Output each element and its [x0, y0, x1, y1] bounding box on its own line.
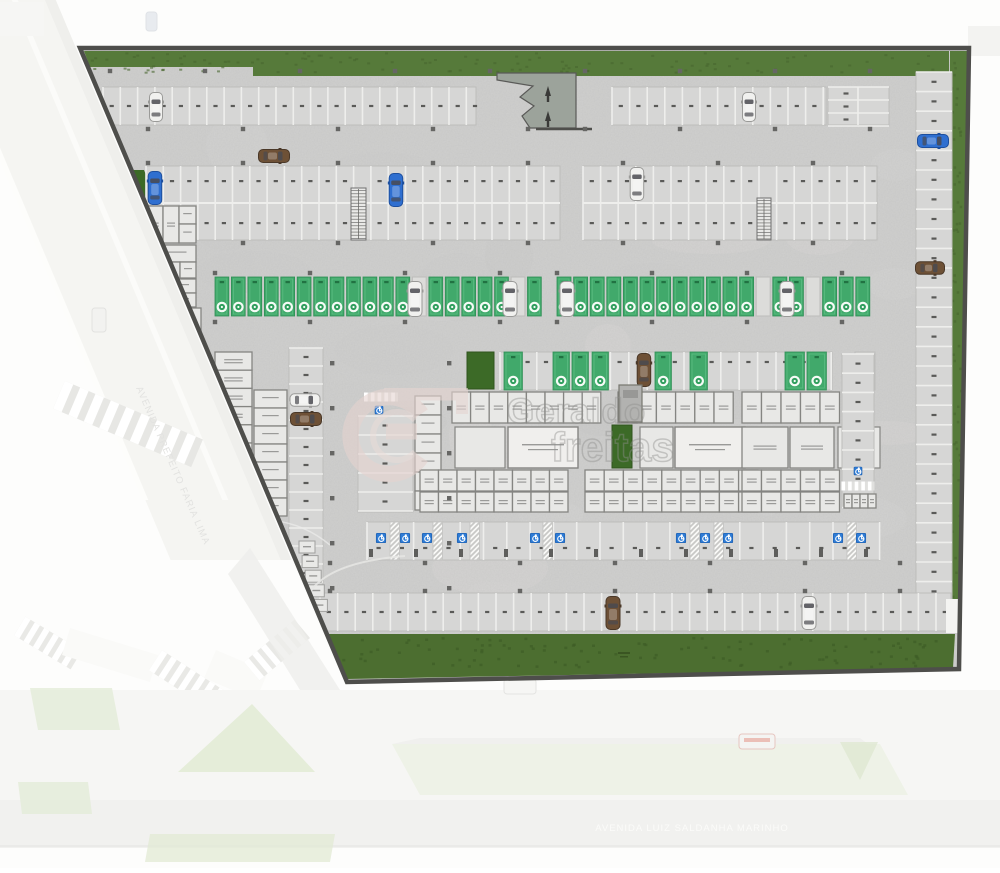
svg-text:AVENIDA LUIZ SALDANHA MARINHO: AVENIDA LUIZ SALDANHA MARINHO — [595, 823, 789, 834]
svg-text:freitas: freitas — [551, 424, 674, 470]
